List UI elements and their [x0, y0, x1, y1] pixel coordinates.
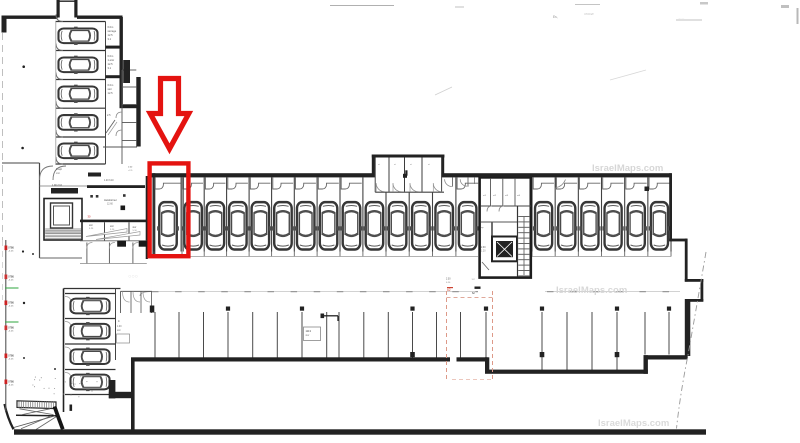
svg-text:2.30: 2.30 [446, 279, 451, 281]
svg-text:07B6: 07B6 [8, 380, 14, 383]
svg-text:-3.25: -3.25 [8, 330, 14, 332]
svg-text:12.5: 12.5 [108, 62, 114, 66]
svg-text:12.5: 12.5 [108, 33, 114, 37]
svg-text:07B6: 07B6 [8, 301, 14, 304]
svg-text:○○○: ○○○ [128, 274, 138, 280]
svg-text:07B6: 07B6 [8, 246, 14, 249]
svg-text:3.1: 3.1 [108, 66, 112, 70]
svg-text:IsraelMaps.com: IsraelMaps.com [598, 418, 669, 429]
svg-text:Es,: Es, [553, 15, 558, 19]
svg-text:12.5: 12.5 [108, 91, 114, 95]
svg-text:1.00: 1.00 [117, 326, 122, 328]
svg-text:אבטחה: אבטחה [584, 12, 594, 16]
svg-text:2.5: 2.5 [107, 114, 111, 117]
svg-text:transformer: transformer [104, 199, 117, 202]
svg-text:1.20: 1.20 [481, 251, 486, 253]
svg-text:1-stor: 1-stor [108, 58, 115, 62]
svg-text:6.0m: 6.0m [108, 25, 114, 29]
svg-text:1.20 3.10: 1.20 3.10 [104, 180, 114, 182]
svg-text:-3.25: -3.25 [8, 250, 14, 252]
svg-text:stor: stor [110, 225, 114, 228]
svg-text:07B6: 07B6 [8, 354, 14, 357]
svg-text:-3.25: -3.25 [8, 358, 14, 360]
svg-text:07B6: 07B6 [8, 275, 14, 278]
svg-text:3.1: 3.1 [108, 37, 112, 41]
svg-text:07B6: 07B6 [8, 326, 14, 329]
svg-text:6.0m: 6.0m [108, 83, 114, 87]
svg-text:IsraelMaps.com: IsraelMaps.com [556, 285, 627, 296]
svg-text:storage: storage [108, 29, 117, 33]
svg-text:12.60: 12.60 [107, 204, 113, 206]
svg-text:........: ........ [678, 16, 684, 20]
svg-text:6.0m: 6.0m [108, 54, 114, 58]
svg-text:stor: stor [56, 172, 60, 175]
svg-text:stor: stor [108, 87, 112, 91]
svg-text:stor: stor [117, 329, 121, 332]
svg-text:-3.25: -3.25 [8, 279, 14, 281]
svg-text:62: 62 [447, 288, 451, 292]
svg-text:-3.25: -3.25 [8, 384, 14, 386]
svg-text:6-apt: 6-apt [56, 167, 62, 171]
svg-text:2.30: 2.30 [481, 247, 486, 249]
svg-text:1.90 2.10: 1.90 2.10 [52, 184, 63, 187]
svg-text:stor: stor [133, 226, 137, 229]
svg-text:stor: stor [89, 224, 93, 227]
svg-text:-3.25: -3.25 [8, 305, 14, 307]
svg-text:1113: 1113 [306, 329, 312, 333]
svg-text:stor: stor [306, 334, 310, 337]
svg-text:IsraelMaps.com: IsraelMaps.com [592, 163, 663, 174]
